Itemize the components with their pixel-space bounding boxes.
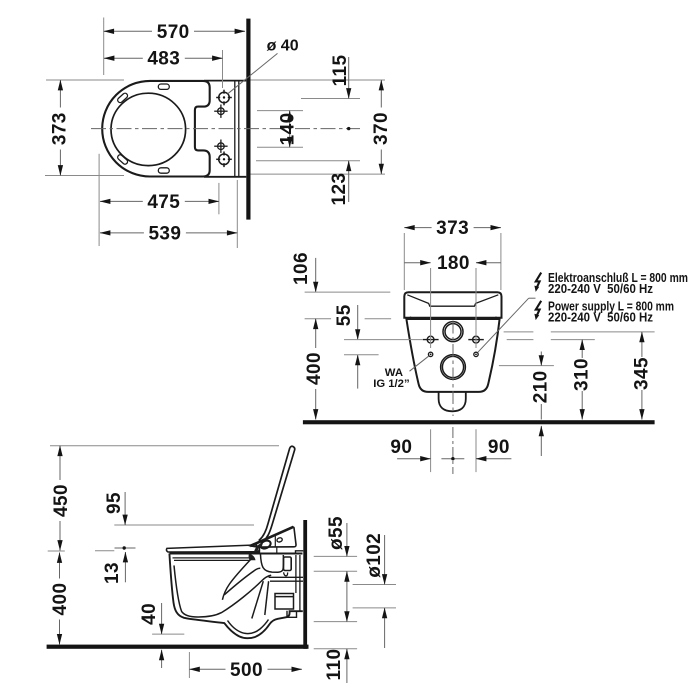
svg-text:500: 500 <box>230 660 263 681</box>
svg-text:483: 483 <box>147 49 180 70</box>
svg-text:IG 1/2”: IG 1/2” <box>373 378 409 390</box>
svg-text:370: 370 <box>371 112 392 145</box>
svg-text:110: 110 <box>324 649 345 681</box>
svg-text:450: 450 <box>51 484 72 517</box>
svg-text:210: 210 <box>531 370 552 403</box>
svg-text:ø55: ø55 <box>326 516 347 550</box>
svg-text:ø102: ø102 <box>364 533 385 578</box>
svg-text:115: 115 <box>330 55 351 87</box>
svg-text:90: 90 <box>390 437 412 458</box>
svg-text:90: 90 <box>488 437 510 458</box>
svg-text:400: 400 <box>50 583 71 616</box>
svg-text:40: 40 <box>139 603 160 625</box>
svg-text:123: 123 <box>329 173 350 206</box>
svg-text:95: 95 <box>104 492 125 514</box>
svg-text:106: 106 <box>291 252 312 285</box>
svg-text:220-240 V 50/60 Hz: 220-240 V 50/60 Hz <box>548 281 653 296</box>
svg-text:ø 40: ø 40 <box>267 38 299 55</box>
svg-text:310: 310 <box>572 358 593 391</box>
svg-text:570: 570 <box>157 22 190 43</box>
svg-text:373: 373 <box>50 112 71 145</box>
svg-text:373: 373 <box>436 218 469 239</box>
svg-text:345: 345 <box>631 357 652 390</box>
svg-text:220-240 V 50/60 Hz: 220-240 V 50/60 Hz <box>548 310 653 325</box>
svg-text:55: 55 <box>334 304 355 326</box>
svg-text:180: 180 <box>437 253 470 274</box>
svg-text:13: 13 <box>102 562 123 584</box>
svg-text:539: 539 <box>148 223 181 244</box>
svg-text:400: 400 <box>304 352 325 385</box>
svg-text:475: 475 <box>147 192 180 213</box>
svg-text:140: 140 <box>277 112 298 145</box>
